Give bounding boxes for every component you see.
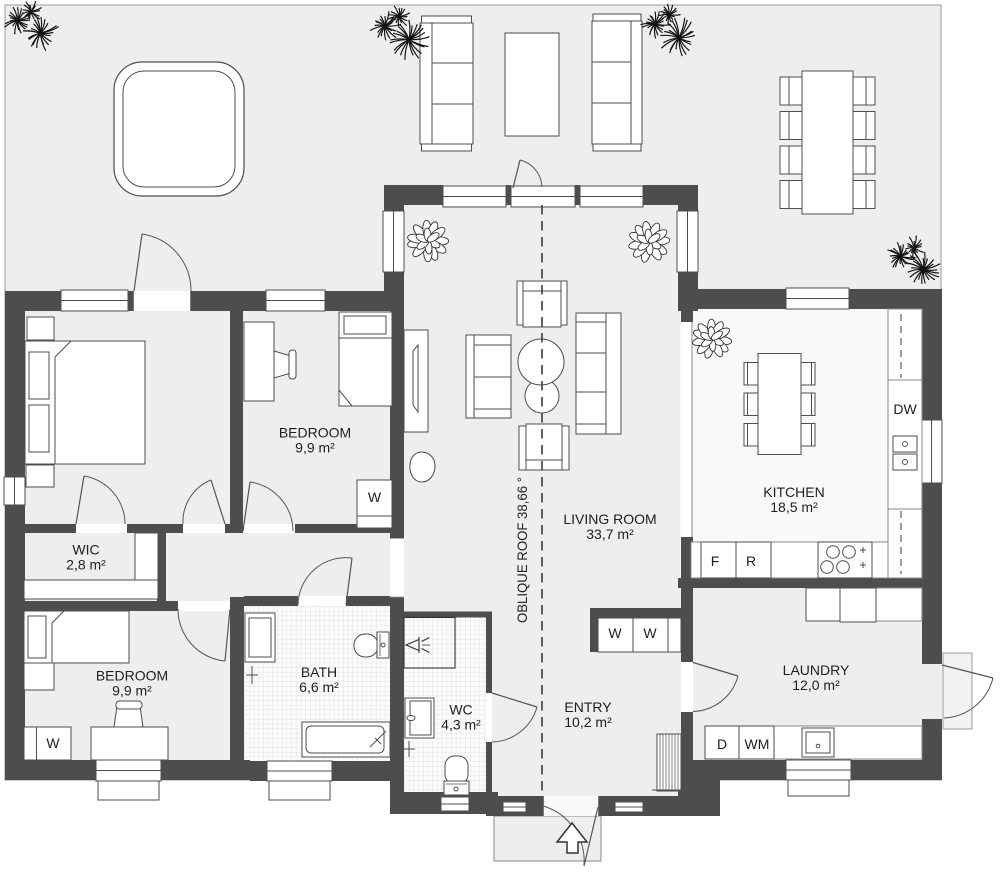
svg-text:KITCHEN: KITCHEN [763,484,824,500]
svg-text:BEDROOM: BEDROOM [96,668,168,684]
svg-text:WIC: WIC [72,542,99,558]
svg-text:LAUNDRY: LAUNDRY [783,662,850,678]
svg-text:W: W [643,625,657,641]
svg-text:ENTRY: ENTRY [564,699,612,715]
svg-text:10,2 m²: 10,2 m² [564,714,612,730]
svg-text:OBLIQUE ROOF 38,66 °: OBLIQUE ROOF 38,66 ° [514,477,530,623]
svg-text:LIVING ROOM: LIVING ROOM [563,511,656,527]
svg-text:W: W [608,625,622,641]
svg-text:WM: WM [745,736,770,752]
svg-text:12,0 m²: 12,0 m² [792,677,840,693]
svg-text:2,8 m²: 2,8 m² [66,557,106,573]
svg-text:18,5 m²: 18,5 m² [770,499,818,515]
svg-text:D: D [717,736,727,752]
svg-text:W: W [368,489,382,505]
svg-text:6,6 m²: 6,6 m² [299,679,339,695]
svg-text:9,9 m²: 9,9 m² [112,683,152,699]
svg-text:9,9 m²: 9,9 m² [295,440,335,456]
svg-text:F: F [711,553,720,569]
svg-text:BATH: BATH [301,664,337,680]
svg-text:4,3 m²: 4,3 m² [441,717,481,733]
svg-text:BEDROOM: BEDROOM [279,425,351,441]
svg-text:R: R [746,553,756,569]
svg-text:WC: WC [449,702,472,718]
svg-text:DW: DW [893,401,917,417]
svg-text:33,7 m²: 33,7 m² [586,526,634,542]
svg-text:W: W [46,735,60,751]
